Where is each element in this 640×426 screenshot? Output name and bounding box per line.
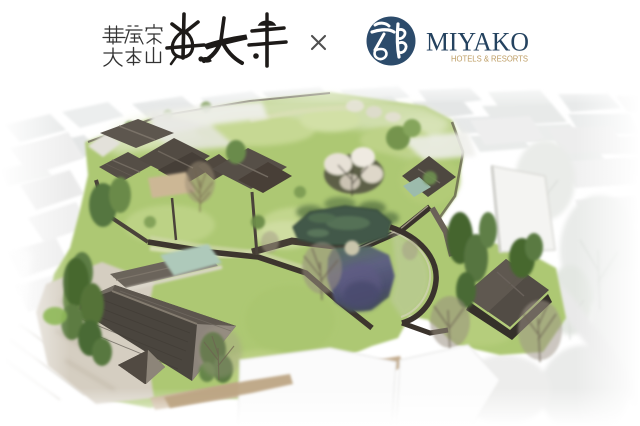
svg-text:MIYAKO: MIYAKO [426, 27, 529, 57]
svg-text:HOTELS & RESORTS: HOTELS & RESORTS [451, 54, 528, 64]
